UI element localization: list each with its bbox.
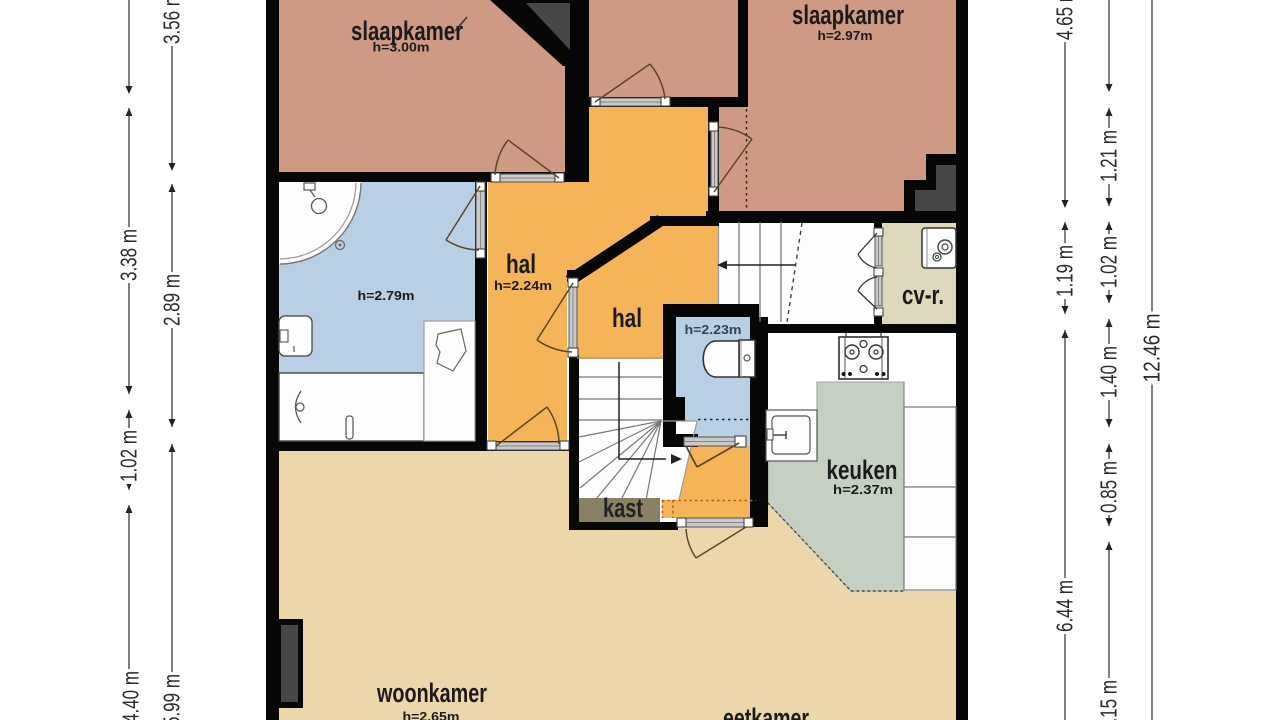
svg-text:h=2.97m: h=2.97m — [818, 28, 873, 43]
svg-text:1.19 m: 1.19 m — [1052, 245, 1078, 297]
svg-text:2.89 m: 2.89 m — [159, 274, 185, 326]
svg-text:h=2.79m: h=2.79m — [358, 288, 415, 303]
svg-text:3.38 m: 3.38 m — [116, 229, 142, 281]
svg-text:6.44 m: 6.44 m — [1052, 580, 1078, 632]
svg-text:h=3.00m: h=3.00m — [373, 40, 430, 55]
svg-text:1.21 m: 1.21 m — [1096, 130, 1122, 182]
svg-text:h=2.37m: h=2.37m — [833, 482, 893, 497]
svg-text:4.65 m: 4.65 m — [1052, 0, 1078, 40]
svg-text:eetkamer: eetkamer — [723, 703, 809, 720]
svg-text:kast: kast — [603, 493, 643, 523]
svg-text:1.02 m: 1.02 m — [1096, 236, 1122, 288]
svg-text:hal: hal — [612, 303, 642, 333]
svg-text:0.85 m: 0.85 m — [1096, 461, 1122, 513]
svg-text:h=2.23m: h=2.23m — [685, 322, 742, 337]
svg-text:slaapkamer: slaapkamer — [792, 0, 904, 30]
svg-text:12.46 m: 12.46 m — [1139, 314, 1165, 383]
svg-text:h=2.24m: h=2.24m — [494, 278, 552, 293]
svg-text:woonkamer: woonkamer — [376, 678, 487, 708]
svg-text:cv-r.: cv-r. — [902, 280, 944, 310]
svg-text:2.15 m: 2.15 m — [1096, 680, 1122, 720]
svg-text:keuken: keuken — [827, 455, 898, 485]
svg-text:hal: hal — [506, 249, 536, 279]
svg-text:h=2.65m: h=2.65m — [403, 709, 460, 720]
svg-text:5.99 m: 5.99 m — [159, 674, 185, 720]
svg-text:4.40 m: 4.40 m — [118, 671, 144, 720]
svg-text:1.02 m: 1.02 m — [116, 430, 142, 482]
svg-text:1.40 m: 1.40 m — [1096, 346, 1122, 398]
svg-text:3.56 m: 3.56 m — [159, 0, 185, 44]
